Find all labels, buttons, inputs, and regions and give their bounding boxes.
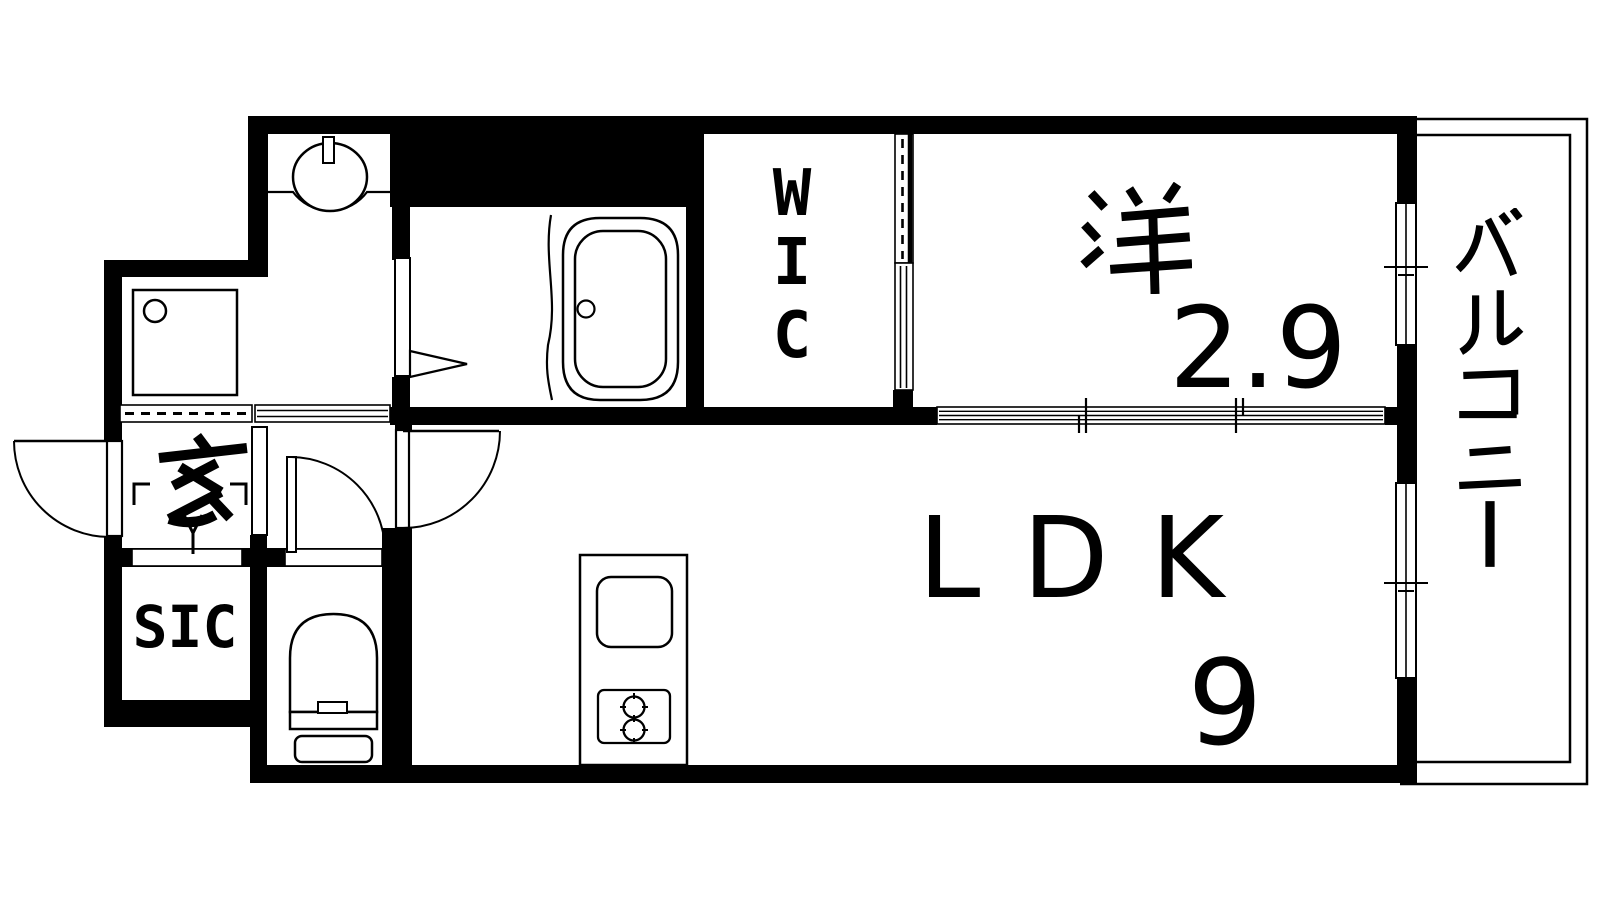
- wall-main-band: [390, 407, 937, 425]
- window-icon: [1384, 203, 1428, 345]
- gas-stove-icon: [598, 690, 670, 744]
- wall-top: [248, 116, 1417, 134]
- wall-left-upper: [248, 134, 268, 277]
- genkan-dashed-opening: [120, 405, 252, 422]
- toilet-icon: [290, 614, 377, 762]
- balcony-char-dash: [1452, 496, 1528, 572]
- wic-char-i: I: [773, 226, 812, 300]
- washroom-sliding-door-icon: [255, 405, 390, 422]
- bathtub-icon: [547, 215, 678, 400]
- wall-washroom-right-stub: [392, 377, 410, 408]
- balcony-char-ru: [1452, 283, 1528, 359]
- wall-sic-bottom: [104, 700, 267, 727]
- wall-toilet-right: [382, 528, 412, 783]
- sic-room-label: SIC: [133, 593, 238, 661]
- wall-ldk-door-stub: [395, 407, 412, 431]
- wall-step: [104, 260, 268, 277]
- wall-bath-wic: [686, 134, 704, 425]
- window-icon: [1384, 483, 1428, 678]
- wic-char-c: C: [773, 299, 812, 373]
- bath-washing-area-curve: [547, 215, 552, 400]
- western-room-label: 洋: [1080, 182, 1192, 294]
- washing-machine-pan-icon: [133, 290, 237, 395]
- ldk-room-label: LDK: [918, 503, 1266, 615]
- wall-wic-stub: [893, 390, 913, 425]
- floor-plan: 玄 SIC W I C 洋: [0, 0, 1600, 900]
- ldk-room-size: 9: [1187, 634, 1262, 772]
- wic-char-w: W: [773, 157, 812, 231]
- wall-sic-right: [250, 535, 267, 783]
- kanji-you-glyph: [1080, 182, 1192, 294]
- wic-sliding-door-icon: [895, 134, 913, 390]
- kitchen-sink-icon: [597, 577, 672, 647]
- pipe-space-above-bath: [390, 134, 698, 207]
- wall-right-seg3: [1397, 678, 1417, 783]
- western-room-size: 2.9: [1169, 284, 1347, 414]
- balcony-char-ba: [1452, 208, 1528, 284]
- kitchen-counter-icon: [580, 555, 687, 765]
- genkan-partition-post: [252, 427, 267, 535]
- bathroom-folding-door-icon: [395, 258, 467, 377]
- wall-partition-right-stub: [1385, 407, 1417, 425]
- toilet-door-swing-icon: [287, 457, 385, 552]
- washbasin-icon: [268, 137, 392, 211]
- balcony-char-ni: [1452, 428, 1528, 504]
- balcony-char-ko: [1452, 356, 1528, 432]
- ldk-door-swing-icon: [396, 430, 500, 528]
- toilet-doorway: [285, 549, 382, 566]
- wall-right-seg1: [1397, 134, 1417, 203]
- genkan-room-label: 玄: [152, 430, 252, 530]
- sic-opening: [132, 549, 242, 566]
- kanji-gen-glyph: [152, 430, 252, 530]
- entrance-door-swing-icon: [14, 441, 122, 537]
